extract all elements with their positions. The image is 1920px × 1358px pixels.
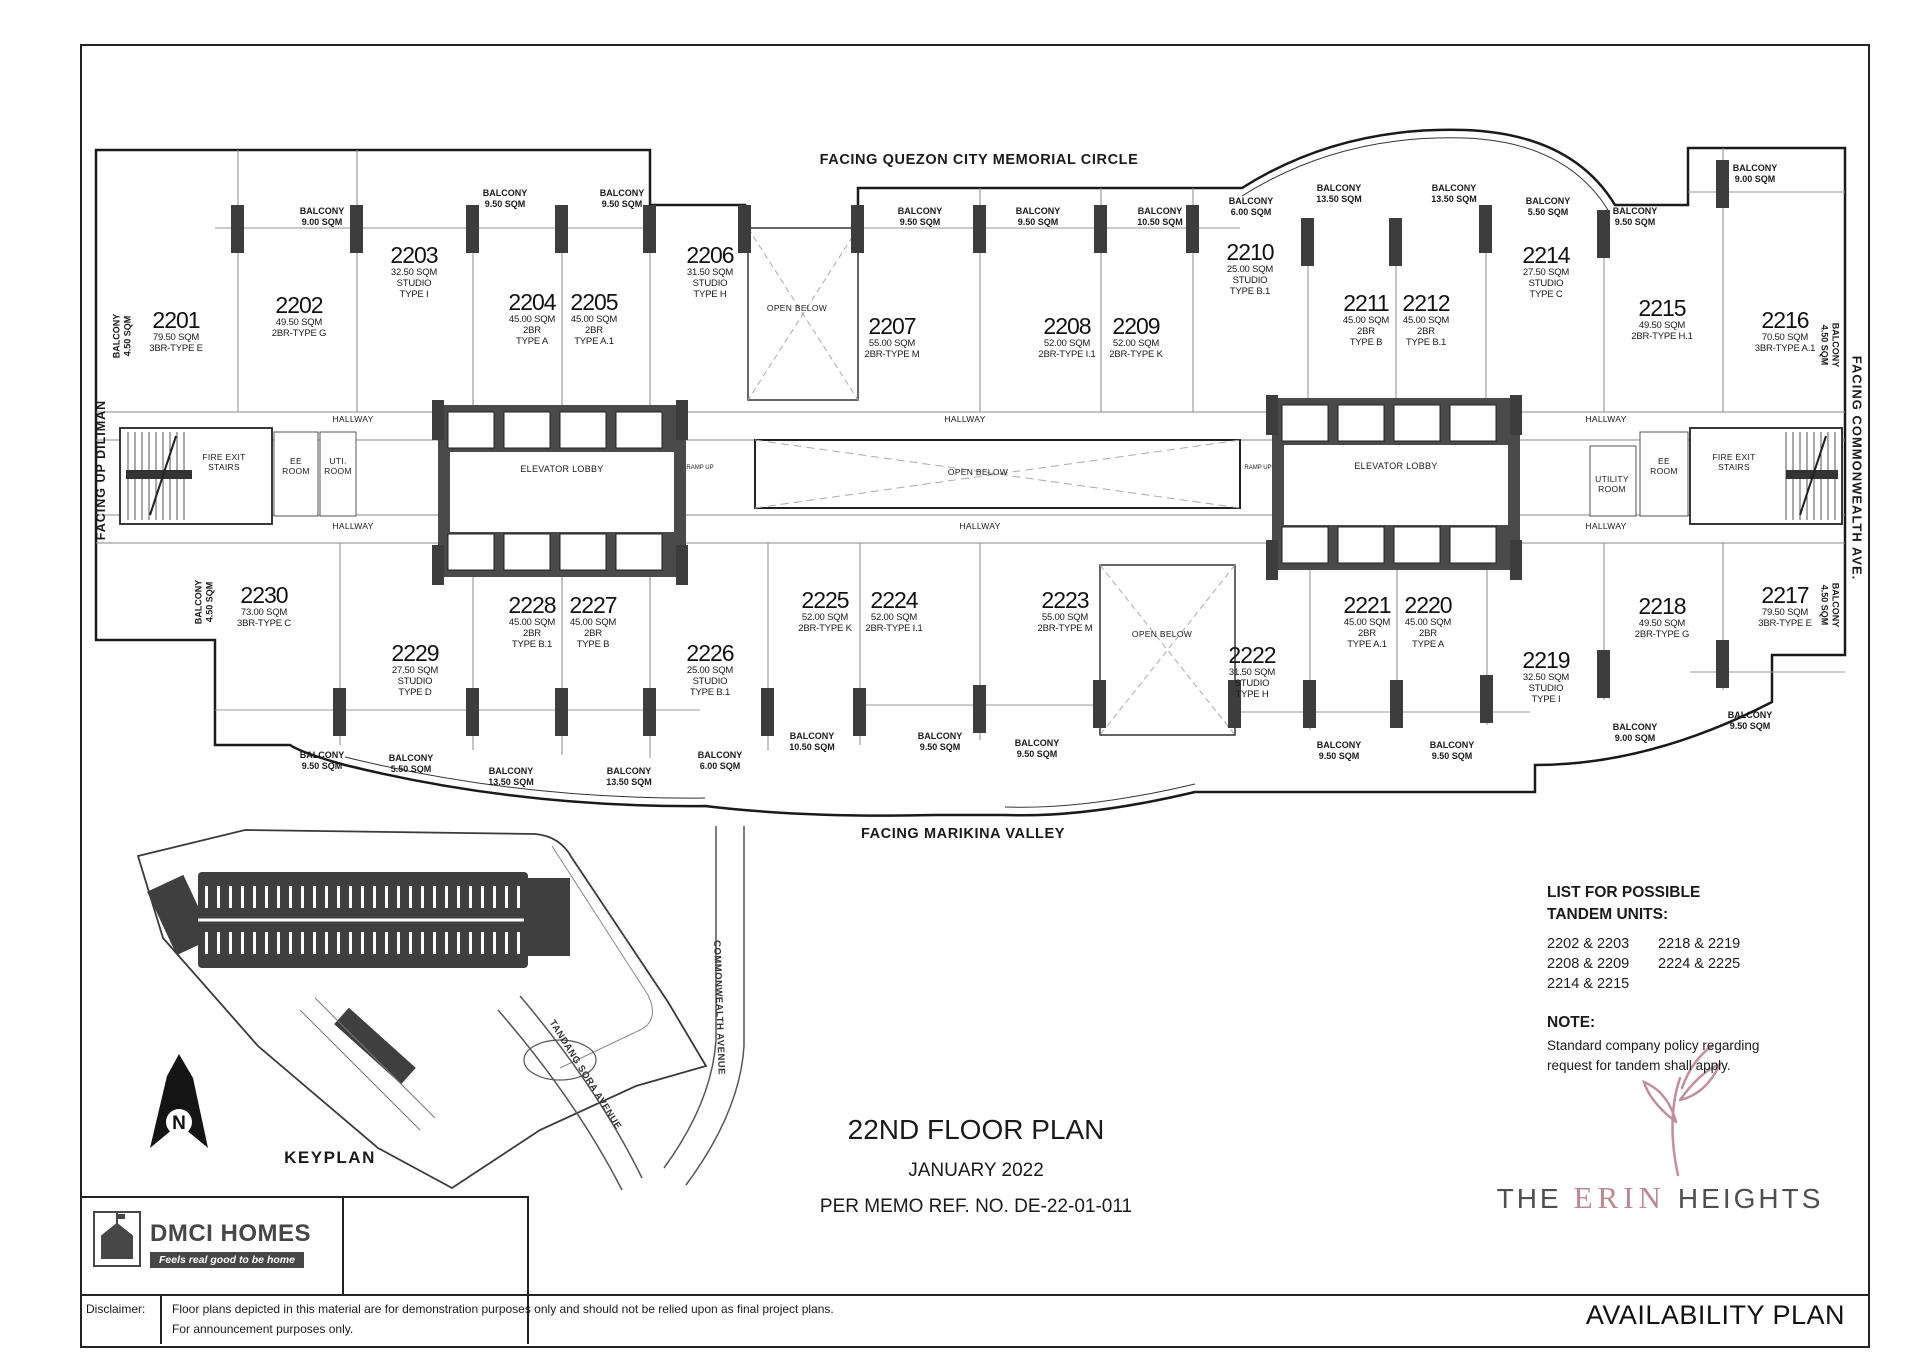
unit-type: 2BR-TYPE I.1 (865, 623, 922, 634)
uti-room-label: UTI. ROOM (318, 456, 358, 476)
unit-2209: 220952.00 SQM2BR-TYPE K (1109, 314, 1162, 360)
unit-type: STUDIO (686, 676, 733, 687)
ee-room-label: EE ROOM (276, 456, 316, 476)
unit-area: 27.50 SQM (391, 665, 438, 676)
balcony-area: 9.00 SQM (300, 217, 345, 228)
tandem-pair: 2208 & 2209 (1547, 956, 1629, 972)
balcony-label: BALCONY9.00 SQM (1613, 722, 1658, 743)
unit-type: TYPE B.1 (1402, 337, 1449, 348)
tandem-pair: 2218 & 2219 (1658, 936, 1740, 952)
unit-number: 2202 (272, 293, 327, 317)
unit-2228: 222845.00 SQM2BRTYPE B.1 (508, 593, 555, 650)
unit-type: TYPE A.1 (570, 336, 617, 347)
unit-type: 2BR-TYPE G (1635, 629, 1690, 640)
unit-area: 52.00 SQM (1038, 338, 1095, 349)
unit-area: 32.50 SQM (390, 267, 437, 278)
unit-area: 55.00 SQM (1037, 612, 1092, 623)
unit-2205: 220545.00 SQM2BRTYPE A.1 (570, 290, 617, 347)
unit-area: 32.50 SQM (1522, 672, 1569, 683)
balcony-label: BALCONY6.00 SQM (1229, 196, 1274, 217)
balcony-label: BALCONY4.50 SQM (194, 580, 215, 625)
north-letter: N (172, 1113, 186, 1134)
balcony-area: 9.00 SQM (1613, 733, 1658, 744)
balcony-label: BALCONY9.50 SQM (918, 731, 963, 752)
unit-number: 2227 (569, 593, 616, 617)
balcony-area: 9.50 SQM (1430, 751, 1475, 762)
balcony-word: BALCONY (918, 731, 963, 742)
balcony-label: BALCONY9.50 SQM (1015, 738, 1060, 759)
hallway-label: HALLWAY (313, 414, 393, 424)
unit-number: 2210 (1226, 240, 1273, 264)
unit-type: TYPE A.1 (1343, 639, 1390, 650)
balcony-area: 9.50 SQM (600, 199, 645, 210)
unit-number: 2226 (686, 641, 733, 665)
unit-type: TYPE A (508, 336, 555, 347)
balcony-area: 9.50 SQM (300, 761, 345, 772)
balcony-label: BALCONY4.50 SQM (1820, 583, 1841, 628)
balcony-area: 13.50 SQM (606, 777, 652, 788)
note-title: NOTE: (1547, 1014, 1595, 1032)
hallway-label: HALLWAY (1566, 414, 1646, 424)
balcony-word: BALCONY (1526, 196, 1571, 207)
unit-2211: 221145.00 SQM2BRTYPE B (1343, 291, 1389, 348)
unit-2221: 222145.00 SQM2BRTYPE A.1 (1343, 593, 1390, 650)
titleblock-line (80, 1294, 1868, 1296)
balcony-word: BALCONY (898, 206, 943, 217)
unit-area: 79.50 SQM (1758, 607, 1811, 618)
balcony-word: BALCONY (1431, 183, 1477, 194)
fire-exit-stairs-right-drawing (1690, 428, 1842, 524)
balcony-area: 9.50 SQM (918, 742, 963, 753)
unit-2202: 220249.50 SQM2BR-TYPE G (272, 293, 327, 339)
balcony-label: BALCONY6.00 SQM (698, 750, 743, 771)
balcony-word: BALCONY (112, 314, 123, 359)
unit-2219: 221932.50 SQMSTUDIOTYPE I (1522, 648, 1569, 705)
balcony-area: 10.50 SQM (789, 742, 835, 753)
open-below-label: OPEN BELOW (1117, 629, 1207, 639)
balcony-label: BALCONY9.00 SQM (300, 206, 345, 227)
erin-heights-logo: THEERINHEIGHTS (1497, 1180, 1824, 1216)
balcony-label: BALCONY9.50 SQM (1728, 710, 1773, 731)
open-below-void-top (748, 228, 858, 400)
balcony-area: 13.50 SQM (488, 777, 534, 788)
unit-2214: 221427.50 SQMSTUDIOTYPE C (1522, 243, 1569, 300)
balcony-label: BALCONY5.50 SQM (389, 753, 434, 774)
balcony-area: 5.50 SQM (1526, 207, 1571, 218)
unit-area: 45.00 SQM (1343, 617, 1390, 628)
unit-type: 2BR-TYPE H.1 (1631, 331, 1692, 342)
balcony-word: BALCONY (1317, 740, 1362, 751)
unit-type: STUDIO (390, 278, 437, 289)
unit-type: TYPE D (391, 687, 438, 698)
north-arrow-icon: N (150, 1054, 208, 1148)
unit-2208: 220852.00 SQM2BR-TYPE I.1 (1038, 314, 1095, 360)
hallway-label: HALLWAY (925, 414, 1005, 424)
unit-type: 2BR (1343, 326, 1389, 337)
balcony-area: 5.50 SQM (389, 764, 434, 775)
unit-number: 2224 (865, 588, 922, 612)
open-below-label: OPEN BELOW (933, 467, 1023, 477)
unit-number: 2215 (1631, 296, 1692, 320)
disclaimer-line: Floor plans depicted in this material ar… (172, 1302, 834, 1316)
unit-area: 49.50 SQM (1635, 618, 1690, 629)
balcony-label: BALCONY9.50 SQM (300, 750, 345, 771)
unit-number: 2212 (1402, 291, 1449, 315)
logo-erin: ERIN (1574, 1180, 1666, 1215)
unit-area: 49.50 SQM (272, 317, 327, 328)
unit-number: 2219 (1522, 648, 1569, 672)
disclaimer-line: For announcement purposes only. (172, 1322, 353, 1336)
unit-type: STUDIO (686, 278, 733, 289)
balcony-word: BALCONY (1229, 196, 1274, 207)
unit-number: 2221 (1343, 593, 1390, 617)
elevator-lobby-label: ELEVATOR LOBBY (1326, 461, 1466, 471)
unit-number: 2216 (1755, 308, 1815, 332)
balcony-word: BALCONY (389, 753, 434, 764)
balcony-label: BALCONY13.50 SQM (1316, 183, 1362, 204)
unit-number: 2211 (1343, 291, 1389, 315)
unit-area: 31.50 SQM (1228, 667, 1275, 678)
fire-exit-stairs-left-drawing (120, 428, 272, 524)
balcony-word: BALCONY (1728, 710, 1773, 721)
unit-number: 2228 (508, 593, 555, 617)
unit-area: 45.00 SQM (1343, 315, 1389, 326)
balcony-label: BALCONY9.50 SQM (483, 188, 528, 209)
unit-type: TYPE A (1404, 639, 1451, 650)
tandem-pair: 2214 & 2215 (1547, 976, 1629, 992)
dmci-tagline: Feels real good to be home (150, 1252, 304, 1268)
balcony-word: BALCONY (698, 750, 743, 761)
unit-type: 2BR (570, 325, 617, 336)
balcony-area: 4.50 SQM (1820, 323, 1831, 368)
unit-type: 2BR-TYPE M (1037, 623, 1092, 634)
unit-type: 2BR-TYPE K (798, 623, 851, 634)
balcony-word: BALCONY (606, 766, 652, 777)
balcony-label: BALCONY9.00 SQM (1733, 163, 1778, 184)
unit-type: 3BR-TYPE C (237, 618, 291, 629)
elevator-lobby-label: ELEVATOR LOBBY (492, 464, 632, 474)
logo-heights: HEIGHTS (1678, 1183, 1823, 1214)
unit-number: 2223 (1037, 588, 1092, 612)
unit-2227: 222745.00 SQM2BRTYPE B (569, 593, 616, 650)
open-below-void-bottom (1100, 565, 1235, 735)
unit-type: STUDIO (1522, 278, 1569, 289)
unit-number: 2203 (390, 243, 437, 267)
unit-area: 45.00 SQM (569, 617, 616, 628)
unit-2206: 220631.50 SQMSTUDIOTYPE H (686, 243, 733, 300)
unit-area: 45.00 SQM (1404, 617, 1451, 628)
availability-plan-sheet: N FACING QUEZON CITY MEMORIAL CIRCLE FAC… (0, 0, 1920, 1358)
disclaimer-divider (160, 1294, 162, 1344)
dmci-box-divider (342, 1196, 344, 1294)
hallway-label: HALLWAY (940, 521, 1020, 531)
unit-type: TYPE B (569, 639, 616, 650)
disclaimer-label: Disclaimer: (86, 1302, 145, 1316)
fire-exit-stairs-label: FIRE EXIT STAIRS (192, 452, 256, 472)
floor-plan-title: 22ND FLOOR PLAN (848, 1114, 1105, 1146)
balcony-word: BALCONY (1015, 738, 1060, 749)
unit-2224: 222452.00 SQM2BR-TYPE I.1 (865, 588, 922, 634)
hallway-label: HALLWAY (1566, 521, 1646, 531)
balcony-area: 13.50 SQM (1316, 194, 1362, 205)
facing-label-bottom: FACING MARIKINA VALLEY (861, 826, 1065, 842)
unit-2203: 220332.50 SQMSTUDIOTYPE I (390, 243, 437, 300)
unit-number: 2225 (798, 588, 851, 612)
balcony-area: 9.50 SQM (898, 217, 943, 228)
fire-exit-stairs-label: FIRE EXIT STAIRS (1702, 452, 1766, 472)
unit-2225: 222552.00 SQM2BR-TYPE K (798, 588, 851, 634)
keyplan-label: KEYPLAN (284, 1148, 376, 1168)
unit-2223: 222355.00 SQM2BR-TYPE M (1037, 588, 1092, 634)
unit-area: 55.00 SQM (864, 338, 919, 349)
unit-number: 2230 (237, 583, 291, 607)
balcony-label: BALCONY13.50 SQM (1431, 183, 1477, 204)
balcony-label: BALCONY9.50 SQM (1016, 206, 1061, 227)
unit-type: STUDIO (1226, 275, 1273, 286)
unit-type: 2BR (1402, 326, 1449, 337)
unit-type: TYPE H (1228, 689, 1275, 700)
unit-type: TYPE I (390, 289, 437, 300)
elevator-core-left (438, 405, 686, 577)
tandem-title: TANDEM UNITS: (1547, 906, 1668, 924)
balcony-word: BALCONY (1016, 206, 1061, 217)
unit-type: TYPE I (1522, 694, 1569, 705)
ee-room-label: EE ROOM (1644, 456, 1684, 476)
unit-number: 2208 (1038, 314, 1095, 338)
unit-area: 45.00 SQM (1402, 315, 1449, 326)
unit-type: STUDIO (391, 676, 438, 687)
unit-2217: 221779.50 SQM3BR-TYPE E (1758, 583, 1811, 629)
unit-type: TYPE C (1522, 289, 1569, 300)
unit-2204: 220445.00 SQM2BRTYPE A (508, 290, 555, 347)
unit-area: 52.00 SQM (1109, 338, 1162, 349)
unit-type: 2BR-TYPE I.1 (1038, 349, 1095, 360)
unit-2222: 222231.50 SQMSTUDIOTYPE H (1228, 643, 1275, 700)
balcony-area: 9.00 SQM (1733, 174, 1778, 185)
balcony-word: BALCONY (300, 750, 345, 761)
unit-type: STUDIO (1228, 678, 1275, 689)
unit-type: 3BR-TYPE E (1758, 618, 1811, 629)
unit-type: STUDIO (1522, 683, 1569, 694)
unit-type: TYPE B (1343, 337, 1389, 348)
balcony-label: BALCONY9.50 SQM (600, 188, 645, 209)
balcony-area: 13.50 SQM (1431, 194, 1477, 205)
unit-number: 2209 (1109, 314, 1162, 338)
balcony-label: BALCONY13.50 SQM (488, 766, 534, 787)
balcony-word: BALCONY (600, 188, 645, 199)
unit-type: 2BR (508, 325, 555, 336)
keyplan-building (147, 872, 570, 968)
balcony-label: BALCONY9.50 SQM (898, 206, 943, 227)
unit-type: 2BR-TYPE K (1109, 349, 1162, 360)
unit-2212: 221245.00 SQM2BRTYPE B.1 (1402, 291, 1449, 348)
balcony-word: BALCONY (1613, 722, 1658, 733)
unit-area: 45.00 SQM (570, 314, 617, 325)
unit-type: 3BR-TYPE A.1 (1755, 343, 1815, 354)
balcony-area: 9.50 SQM (1613, 217, 1658, 228)
unit-area: 52.00 SQM (798, 612, 851, 623)
unit-type: TYPE H (686, 289, 733, 300)
balcony-word: BALCONY (1430, 740, 1475, 751)
balcony-label: BALCONY4.50 SQM (112, 314, 133, 359)
unit-type: 2BR (1343, 628, 1390, 639)
unit-type: 2BR (1404, 628, 1451, 639)
open-below-label: OPEN BELOW (752, 303, 842, 313)
unit-area: 25.00 SQM (686, 665, 733, 676)
unit-type: TYPE B.1 (686, 687, 733, 698)
unit-2201: 220179.50 SQM3BR-TYPE E (149, 308, 202, 354)
balcony-label: BALCONY9.50 SQM (1317, 740, 1362, 761)
balcony-label: BALCONY9.50 SQM (1430, 740, 1475, 761)
unit-number: 2207 (864, 314, 919, 338)
balcony-area: 9.50 SQM (1015, 749, 1060, 760)
utility-room-label: UTILITY ROOM (1585, 474, 1639, 494)
unit-area: 25.00 SQM (1226, 264, 1273, 275)
ramp-up-label: RAMP UP (1244, 465, 1271, 472)
balcony-word: BALCONY (194, 580, 205, 625)
dmci-box-top (80, 1196, 527, 1198)
balcony-label: BALCONY5.50 SQM (1526, 196, 1571, 217)
balcony-area: 6.00 SQM (1229, 207, 1274, 218)
unit-number: 2217 (1758, 583, 1811, 607)
balcony-word: BALCONY (1137, 206, 1183, 217)
tandem-pair: 2224 & 2225 (1658, 956, 1740, 972)
logo-the: THE (1497, 1183, 1562, 1214)
unit-2226: 222625.00 SQMSTUDIOTYPE B.1 (686, 641, 733, 698)
unit-number: 2214 (1522, 243, 1569, 267)
balcony-word: BALCONY (1830, 583, 1841, 628)
unit-area: 52.00 SQM (865, 612, 922, 623)
elevator-core-right (1272, 398, 1520, 570)
balcony-area: 6.00 SQM (698, 761, 743, 772)
unit-type: 2BR-TYPE M (864, 349, 919, 360)
unit-2210: 221025.00 SQMSTUDIOTYPE B.1 (1226, 240, 1273, 297)
unit-type: TYPE B.1 (1226, 286, 1273, 297)
unit-area: 27.50 SQM (1522, 267, 1569, 278)
unit-2215: 221549.50 SQM2BR-TYPE H.1 (1631, 296, 1692, 342)
unit-type: 3BR-TYPE E (149, 343, 202, 354)
unit-area: 45.00 SQM (508, 617, 555, 628)
balcony-area: 9.50 SQM (1317, 751, 1362, 762)
keyplan-drawing: N (138, 826, 744, 1190)
unit-2218: 221849.50 SQM2BR-TYPE G (1635, 594, 1690, 640)
balcony-area: 9.50 SQM (483, 199, 528, 210)
unit-2229: 222927.50 SQMSTUDIOTYPE D (391, 641, 438, 698)
unit-area: 49.50 SQM (1631, 320, 1692, 331)
balcony-word: BALCONY (1733, 163, 1778, 174)
unit-number: 2204 (508, 290, 555, 314)
balcony-word: BALCONY (483, 188, 528, 199)
unit-type: TYPE B.1 (508, 639, 555, 650)
balcony-area: 10.50 SQM (1137, 217, 1183, 228)
tandem-title: LIST FOR POSSIBLE (1547, 884, 1700, 902)
dmci-box-right (527, 1196, 529, 1344)
facing-label-left: FACING UP DILIMAN (94, 400, 108, 540)
balcony-label: BALCONY13.50 SQM (606, 766, 652, 787)
unit-type: 2BR-TYPE G (272, 328, 327, 339)
unit-number: 2201 (149, 308, 202, 332)
note-line: request for tandem shall apply. (1547, 1058, 1731, 1073)
unit-number: 2229 (391, 641, 438, 665)
facing-label-right: FACING COMMONWEALTH AVE. (1850, 356, 1865, 581)
unit-2216: 221670.50 SQM3BR-TYPE A.1 (1755, 308, 1815, 354)
ramp-up-label: RAMP UP (686, 465, 713, 472)
unit-number: 2220 (1404, 593, 1451, 617)
unit-area: 31.50 SQM (686, 267, 733, 278)
hallway-label: HALLWAY (313, 521, 393, 531)
unit-area: 73.00 SQM (237, 607, 291, 618)
balcony-word: BALCONY (789, 731, 835, 742)
unit-type: 2BR (569, 628, 616, 639)
balcony-word: BALCONY (1316, 183, 1362, 194)
dmci-homes-logo-text: DMCI HOMES (150, 1220, 311, 1248)
unit-area: 79.50 SQM (149, 332, 202, 343)
balcony-word: BALCONY (488, 766, 534, 777)
tandem-pair: 2202 & 2203 (1547, 936, 1629, 952)
balcony-label: BALCONY4.50 SQM (1820, 323, 1841, 368)
unit-area: 70.50 SQM (1755, 332, 1815, 343)
balcony-label: BALCONY10.50 SQM (789, 731, 835, 752)
balcony-area: 4.50 SQM (1820, 583, 1831, 628)
balcony-label: BALCONY9.50 SQM (1613, 206, 1658, 227)
unit-2207: 220755.00 SQM2BR-TYPE M (864, 314, 919, 360)
plan-date: JANUARY 2022 (908, 1160, 1044, 1182)
unit-area: 45.00 SQM (508, 314, 555, 325)
balcony-area: 9.50 SQM (1728, 721, 1773, 732)
dmci-logo-icon (94, 1212, 140, 1266)
unit-number: 2206 (686, 243, 733, 267)
unit-number: 2222 (1228, 643, 1275, 667)
unit-2220: 222045.00 SQM2BRTYPE A (1404, 593, 1451, 650)
facing-label-top: FACING QUEZON CITY MEMORIAL CIRCLE (820, 152, 1139, 168)
balcony-word: BALCONY (1613, 206, 1658, 217)
balcony-word: BALCONY (300, 206, 345, 217)
balcony-area: 4.50 SQM (204, 580, 215, 625)
unit-number: 2218 (1635, 594, 1690, 618)
balcony-word: BALCONY (1830, 323, 1841, 368)
unit-type: 2BR (508, 628, 555, 639)
availability-plan-title: AVAILABILITY PLAN (1586, 1300, 1845, 1331)
balcony-area: 4.50 SQM (122, 314, 133, 359)
unit-number: 2205 (570, 290, 617, 314)
unit-2230: 223073.00 SQM3BR-TYPE C (237, 583, 291, 629)
memo-reference: PER MEMO REF. NO. DE-22-01-011 (820, 1196, 1132, 1218)
note-line: Standard company policy regarding (1547, 1038, 1759, 1053)
balcony-label: BALCONY10.50 SQM (1137, 206, 1183, 227)
balcony-area: 9.50 SQM (1016, 217, 1061, 228)
